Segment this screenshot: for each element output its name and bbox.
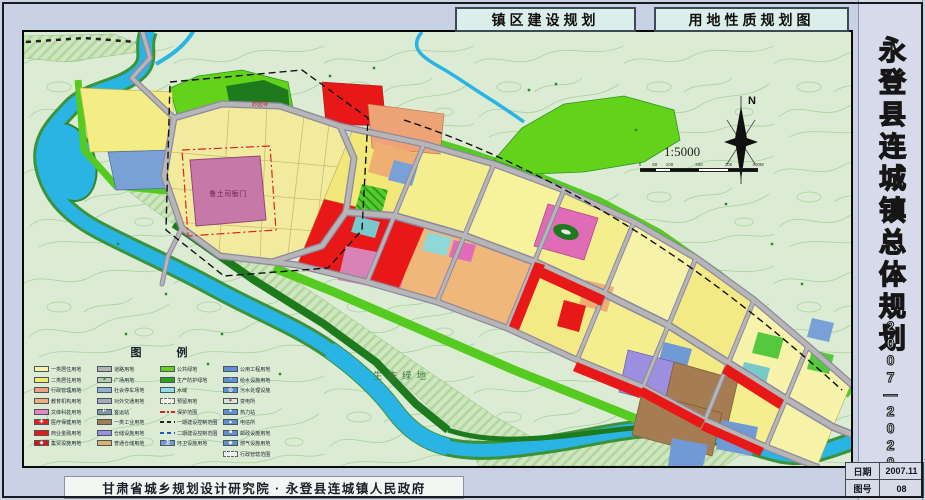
legend-item: ○给水设施用地 xyxy=(223,375,284,386)
title-left-text: 镇区建设规划 xyxy=(492,10,600,30)
legend-swatch xyxy=(97,430,112,436)
legend-columns: 一类居住用地二类居住用地行政管理用地教育机构用地文体科技用地✚医疗保健用地商业金… xyxy=(34,364,284,459)
legend-item-label: 行政管理用地 xyxy=(51,387,81,394)
legend-item-label: 仓储设施用地 xyxy=(114,429,144,436)
legend-item: 二期建设控制范围 xyxy=(160,428,221,439)
legend-item-label: 二类居住用地 xyxy=(51,376,81,383)
sheet: 镇区建设规划 用地性质规划图 xyxy=(0,0,925,500)
legend-item-label: 环卫设施用地 xyxy=(177,440,207,447)
legend-item: ■邮政设施用地 xyxy=(223,428,284,439)
legend-swatch xyxy=(34,366,49,372)
legend-item: 卫环卫设施用地 xyxy=(160,438,221,449)
legend-item: 普通仓储用地 xyxy=(97,438,158,449)
title-right-text: 用地性质规划图 xyxy=(689,10,815,30)
legend-swatch: P xyxy=(97,409,112,415)
legend-swatch: ✚ xyxy=(34,419,49,425)
legend-item: 保护范围 xyxy=(160,406,221,417)
legend-column-4: 公用工程用地○给水设施用地◎污水处理设施✦变电所●热力站▲电信所■邮政设施用地◆… xyxy=(223,364,284,459)
scale-bar-segments xyxy=(640,168,758,172)
legend-item: 一类居住用地 xyxy=(34,364,95,375)
legend-swatch xyxy=(223,451,238,457)
legend-swatch-mark: ✦ xyxy=(224,399,237,403)
legend-swatch: ● xyxy=(223,409,238,415)
legend-item-label: 水域 xyxy=(177,387,187,394)
legend-swatch: ◎ xyxy=(223,387,238,393)
legend-item: 行政管辖范围 xyxy=(223,449,284,460)
planning-map-frame: N 1:5000 鲁土司衙门 妙因寺 生态绿地 图 例 一类居住用地二类居住用地… xyxy=(22,30,853,468)
legend-swatch-mark: ◎ xyxy=(224,388,237,392)
scale-bar-segment xyxy=(641,169,656,171)
temple-label: 妙因寺 xyxy=(252,100,269,108)
legend-item-label: 变电所 xyxy=(240,397,255,404)
legend-swatch: 卫 xyxy=(160,440,175,446)
legend-item-label: 行政管辖范围 xyxy=(240,450,270,457)
legend-item: ◆集贸设施用地 xyxy=(34,438,95,449)
legend-item: 社会停车场地 xyxy=(97,385,158,396)
scale-bar-segment xyxy=(656,169,671,171)
legend-item: ▲电信所 xyxy=(223,417,284,428)
title-box-right: 用地性质规划图 xyxy=(654,7,849,32)
legend-swatch xyxy=(34,387,49,393)
credit-bar: 甘肃省城乡规划设计研究院 · 永登县连城镇人民政府 xyxy=(64,476,464,499)
legend-item-label: 热力站 xyxy=(240,408,255,415)
legend-swatch-mark: ● xyxy=(224,410,237,414)
legend-swatch xyxy=(34,377,49,383)
legend-swatch xyxy=(97,387,112,393)
legend-item-label: 燃气设施用地 xyxy=(240,440,270,447)
sheet-number-label: 图号 xyxy=(846,480,880,497)
legend-item: 水域 xyxy=(160,385,221,396)
plan-title-vertical: 永登县连城镇总体规划 xyxy=(871,36,910,356)
legend-item: ◎污水处理设施 xyxy=(223,385,284,396)
legend-swatch-mark: P xyxy=(98,410,111,414)
legend-swatch: ◆ xyxy=(34,440,49,446)
legend-swatch: ✦ xyxy=(223,398,238,404)
legend-item: ▲广场用地 xyxy=(97,375,158,386)
title-sidebar: 永登县连城镇总体规划 2007—2020 xyxy=(858,0,923,500)
legend-item: 一期建设控制范围 xyxy=(160,417,221,428)
legend-swatch xyxy=(223,366,238,372)
legend-swatch: ▲ xyxy=(223,419,238,425)
legend-item: 公用工程用地 xyxy=(223,364,284,375)
date-label: 日期 xyxy=(846,463,880,480)
scale-bar-segment xyxy=(728,169,757,171)
legend-item-label: 邮政设施用地 xyxy=(240,429,270,436)
legend-item-label: 公共绿地 xyxy=(177,366,197,373)
legend-swatch xyxy=(160,409,175,415)
legend-swatch-mark: ○ xyxy=(224,378,237,382)
heritage-label: 鲁土司衙门 xyxy=(209,189,247,198)
legend-swatch: ▲ xyxy=(97,377,112,383)
legend-swatch xyxy=(160,398,175,404)
eco-green-label: 生态绿地 xyxy=(373,370,431,382)
date-value: 2007.11 xyxy=(880,463,923,480)
legend-item-label: 广场用地 xyxy=(114,376,134,383)
legend-item-label: 保护范围 xyxy=(177,408,197,415)
legend: 图 例 一类居住用地二类居住用地行政管理用地教育机构用地文体科技用地✚医疗保健用… xyxy=(34,344,284,459)
legend-swatch xyxy=(34,398,49,404)
legend-item-label: 商业金融用地 xyxy=(51,429,81,436)
legend-item-label: 对外交通用地 xyxy=(114,397,144,404)
legend-swatch-mark: ◆ xyxy=(224,441,237,445)
drawing-info-table: 日期 2007.11 图号 08 xyxy=(845,462,924,498)
legend-item: 预留用地 xyxy=(160,396,221,407)
legend-swatch-mark: ■ xyxy=(224,431,237,435)
legend-swatch xyxy=(97,398,112,404)
legend-swatch-mark: ▲ xyxy=(224,420,237,424)
sheet-number-value: 08 xyxy=(880,480,923,497)
legend-swatch xyxy=(160,377,175,383)
legend-swatch xyxy=(97,440,112,446)
legend-swatch xyxy=(97,419,112,425)
legend-item-label: 电信所 xyxy=(240,419,255,426)
legend-swatch-mark: 卫 xyxy=(161,441,174,445)
scale-tick-label: 50 xyxy=(652,162,657,167)
legend-item: 文体科技用地 xyxy=(34,406,95,417)
legend-item: 道路用地 xyxy=(97,364,158,375)
legend-item-label: 道路用地 xyxy=(114,366,134,373)
legend-item: ●热力站 xyxy=(223,406,284,417)
legend-item: 一类工业用地 xyxy=(97,417,158,428)
legend-swatch: ■ xyxy=(223,430,238,436)
scale-tick-label: 0 xyxy=(639,162,642,167)
map-scale-label: 1:5000 xyxy=(664,144,700,159)
scale-tick-label: 400M xyxy=(752,162,763,167)
legend-item-label: 预留用地 xyxy=(177,397,197,404)
legend-swatch xyxy=(34,430,49,436)
scale-bar-segment xyxy=(670,169,699,171)
legend-column-2: 道路用地▲广场用地社会停车场地对外交通用地P客运站一类工业用地仓储设施用地普通仓… xyxy=(97,364,158,459)
legend-item-label: 生产防护绿地 xyxy=(177,376,207,383)
legend-item-label: 教育机构用地 xyxy=(51,397,81,404)
legend-item-label: 一类工业用地 xyxy=(114,419,144,426)
scale-tick-label: 100 xyxy=(666,162,674,167)
legend-item: 公共绿地 xyxy=(160,364,221,375)
legend-item-label: 客运站 xyxy=(114,408,129,415)
legend-column-3: 公共绿地生产防护绿地水域预留用地保护范围一期建设控制范围二期建设控制范围卫环卫设… xyxy=(160,364,221,459)
legend-item-label: 医疗保健用地 xyxy=(51,419,81,426)
legend-swatch: ◆ xyxy=(223,440,238,446)
legend-item: ✦变电所 xyxy=(223,396,284,407)
legend-item-label: 一期建设控制范围 xyxy=(177,419,217,426)
scale-tick-label: 300 xyxy=(725,162,733,167)
scale-bar-segment xyxy=(699,169,728,171)
credit-text: 甘肃省城乡规划设计研究院 · 永登县连城镇人民政府 xyxy=(102,478,426,497)
legend-item-label: 二期建设控制范围 xyxy=(177,429,217,436)
legend-swatch xyxy=(34,409,49,415)
compass-north-label: N xyxy=(748,95,756,107)
legend-item-label: 一类居住用地 xyxy=(51,366,81,373)
legend-item: ◆燃气设施用地 xyxy=(223,438,284,449)
legend-swatch xyxy=(97,366,112,372)
legend-item-label: 普通仓储用地 xyxy=(114,440,144,447)
legend-item: ✚医疗保健用地 xyxy=(34,417,95,428)
title-box-left: 镇区建设规划 xyxy=(455,7,636,32)
legend-column-1: 一类居住用地二类居住用地行政管理用地教育机构用地文体科技用地✚医疗保健用地商业金… xyxy=(34,364,95,459)
legend-item-label: 污水处理设施 xyxy=(240,387,270,394)
legend-item-label: 公用工程用地 xyxy=(240,366,270,373)
scale-tick-label: 200 xyxy=(695,162,703,167)
scale-bar: 050100200300400M xyxy=(640,162,758,172)
legend-swatch-mark: ◆ xyxy=(35,441,48,445)
legend-swatch xyxy=(160,387,175,393)
legend-swatch xyxy=(160,419,175,425)
legend-swatch xyxy=(160,366,175,372)
legend-swatch-mark: ✚ xyxy=(35,420,48,424)
legend-swatch: ○ xyxy=(223,377,238,383)
legend-item: 商业金融用地 xyxy=(34,428,95,439)
legend-swatch-mark: ▲ xyxy=(98,378,111,382)
legend-item-label: 给水设施用地 xyxy=(240,376,270,383)
legend-item: 行政管理用地 xyxy=(34,385,95,396)
legend-item-label: 集贸设施用地 xyxy=(51,440,81,447)
legend-item: 对外交通用地 xyxy=(97,396,158,407)
plan-years-vertical: 2007—2020 xyxy=(883,318,899,471)
legend-item: 仓储设施用地 xyxy=(97,428,158,439)
legend-item: 教育机构用地 xyxy=(34,396,95,407)
legend-item-label: 文体科技用地 xyxy=(51,408,81,415)
scale-bar-ticks: 050100200300400M xyxy=(640,162,758,168)
legend-item: 二类居住用地 xyxy=(34,375,95,386)
legend-item: P客运站 xyxy=(97,406,158,417)
legend-title: 图 例 xyxy=(34,344,284,360)
legend-item-label: 社会停车场地 xyxy=(114,387,144,394)
legend-item: 生产防护绿地 xyxy=(160,375,221,386)
legend-swatch xyxy=(160,430,175,436)
